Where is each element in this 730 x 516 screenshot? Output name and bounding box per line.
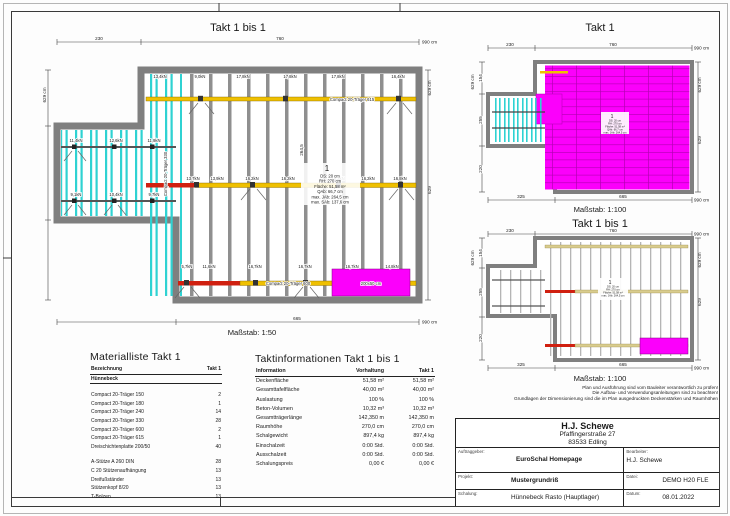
- annotation-block-small: 1 DS: 20 cm RH: 270 cm Fläche: 51,58 m² …: [598, 278, 628, 300]
- svg-text:13,7kN: 13,7kN: [186, 176, 199, 181]
- svg-text:17,8kN: 17,8kN: [331, 74, 344, 79]
- dim-label: 629 cm: [427, 80, 432, 95]
- plan-large-title: Takt 1 bis 1: [210, 22, 266, 34]
- drawing-sheet: { "plan_large": { "title": "Takt 1 bis 1…: [0, 0, 730, 516]
- field-client-value: EuroSchal Homepage: [516, 456, 582, 463]
- svg-text:9,1kN: 9,1kN: [71, 192, 82, 197]
- svg-text:9,0kN: 9,0kN: [195, 74, 206, 79]
- svg-text:629 cm: 629 cm: [470, 250, 475, 265]
- field-date: Datum: 08.01.2022: [624, 490, 719, 506]
- material-row: Stützenkopf 8/2013: [90, 484, 222, 493]
- takt-info-row: Beton-Volumen10,32 m³10,32 m³: [255, 405, 435, 414]
- plan-large-dim-top: [57, 39, 419, 45]
- svg-text:16,2kN: 16,2kN: [281, 176, 294, 181]
- annotation-block-small: 1 DS: 20 cm RH: 270 cm Fläche: 51,58 m² …: [601, 112, 629, 135]
- svg-text:990 cm: 990 cm: [694, 46, 709, 51]
- svg-text:9,7kN: 9,7kN: [149, 192, 160, 197]
- svg-text:230: 230: [506, 42, 514, 47]
- svg-text:760: 760: [609, 42, 617, 47]
- plan-large-dim-bottom: [57, 319, 419, 325]
- material-row: Dreifußständer13: [90, 476, 222, 485]
- takt-info-row: Ausschalzeit0:00 Std.0:00 Std.: [255, 451, 435, 460]
- field-formwork-value: Hünnebeck Rasto (Hauptlager): [511, 494, 599, 501]
- takt-info: Taktinformationen Takt 1 bis 1 Informati…: [255, 353, 435, 469]
- svg-text:17,8kN: 17,8kN: [283, 74, 296, 79]
- beam-label-wing: Compact 20-Träger 330: [163, 151, 168, 196]
- field-editor-label: Bearbeiter:: [626, 449, 717, 454]
- material-list: Materialliste Takt 1 Bezeichnung Takt 1 …: [90, 351, 222, 501]
- svg-text:16,4kN: 16,4kN: [391, 74, 404, 79]
- takt-info-table: Information Vorhaltung Takt 1 Deckenfläc…: [255, 367, 435, 469]
- takt-info-row: Auslastung100 %100 %: [255, 396, 435, 405]
- field-project-value: Mustergrundriß: [511, 477, 558, 484]
- svg-text:12,6kN: 12,6kN: [109, 138, 122, 143]
- company-address-street: Pfaffingerstraße 27: [456, 431, 719, 439]
- svg-text:10,4kN: 10,4kN: [109, 192, 122, 197]
- plan-top-right-title: Takt 1: [585, 22, 614, 34]
- svg-text:5,7kN: 5,7kN: [182, 264, 193, 269]
- svg-text:14,8kN: 14,8kN: [385, 264, 398, 269]
- svg-text:11,4kN: 11,4kN: [70, 138, 83, 143]
- svg-text:629: 629: [697, 298, 702, 306]
- deck-panel-label: 200x50 cm: [361, 281, 382, 286]
- dim-label: 990 cm: [422, 40, 437, 45]
- svg-text:max. SAb: 137,6 cm: max. SAb: 137,6 cm: [311, 200, 349, 205]
- svg-text:154: 154: [478, 74, 483, 82]
- dim-label: 264,5: [299, 144, 304, 156]
- company-address-city: 83533 Edling: [456, 439, 719, 447]
- svg-text:154: 154: [478, 249, 483, 257]
- title-block-company: H.J. Schewe Pfaffingerstraße 27 83533 Ed…: [456, 419, 719, 448]
- beam: [575, 290, 688, 293]
- material-list-table: Bezeichnung Takt 1 Hünnebeck Compact 20-…: [90, 365, 222, 501]
- takt-info-row: Schalgewicht897,4 kg897,4 kg: [255, 432, 435, 441]
- beam-label-top: Compact 20-Träger 615: [330, 97, 375, 102]
- svg-text:13,4kN: 13,4kN: [153, 74, 166, 79]
- beam-red: [545, 290, 575, 293]
- plan-large-dim-right: [425, 70, 431, 300]
- svg-text:255: 255: [478, 116, 483, 124]
- svg-text:665: 665: [619, 362, 627, 367]
- svg-text:990 cm: 990 cm: [694, 232, 709, 237]
- beam: [540, 71, 568, 74]
- dim-label: 230: [95, 36, 103, 41]
- disclaimer-line: Grundlagen der Dimensionierung sind die …: [430, 396, 718, 401]
- company-name: H.J. Schewe: [456, 421, 719, 431]
- field-client-label: Auftraggeber:: [458, 449, 621, 454]
- beam-label-bottom: Compact 20-Träger 600: [266, 281, 311, 286]
- field-date-value: 08.01.2022: [662, 494, 694, 501]
- material-row: Compact 20-Träger 6151: [90, 434, 222, 443]
- field-client: Auftraggeber: EuroSchal Homepage: [456, 448, 624, 472]
- disclaimer: Plan und Ausführung sind vom Bauleiter v…: [430, 385, 718, 401]
- takt-number: 1: [325, 164, 330, 173]
- plan-large-scale: Maßstab: 1:50: [228, 328, 277, 337]
- takt-info-row: Einschalzeit0:00 Std.0:00 Std.: [255, 442, 435, 451]
- takt-info-header: Information Vorhaltung Takt 1: [255, 367, 435, 377]
- title-block: H.J. Schewe Pfaffingerstraße 27 83533 Ed…: [455, 418, 719, 506]
- plan-mid-right-scale: Maßstab: 1:100: [574, 374, 627, 383]
- material-list-title: Materialliste Takt 1: [90, 351, 222, 363]
- field-editor-value: H.J. Schewe: [626, 457, 717, 464]
- material-row: Compact 20-Träger 24014: [90, 408, 222, 417]
- plan-large: Takt 1 bis 1 230 760 990 cm 665 990 cm 6…: [42, 22, 437, 337]
- material-row: Compact 20-Träger 6002: [90, 426, 222, 435]
- material-row: Compact 20-Träger 33028: [90, 417, 222, 426]
- material-row: A-Stütze A 260 DIN28: [90, 458, 222, 467]
- field-project: Projekt: Mustergrundriß: [456, 473, 624, 489]
- material-list-header: Bezeichnung Takt 1: [90, 365, 222, 374]
- svg-text:629: 629: [697, 136, 702, 144]
- beam: [545, 245, 688, 248]
- plan-large-dim-left: [45, 70, 51, 300]
- wing-cyan-joists: [492, 98, 542, 142]
- plan-top-right-scale: Maßstab: 1:100: [574, 205, 627, 214]
- svg-text:max. JAb: 264,5 cm: max. JAb: 264,5 cm: [602, 294, 625, 298]
- annotation-block: 1 DS: 20 cm RH: 270 cm Fläche: 51,58 m² …: [301, 163, 360, 205]
- takt-info-row: Gesamtträgerlänge142,350 m142,350 m: [255, 414, 435, 423]
- svg-text:629 cm: 629 cm: [470, 74, 475, 89]
- svg-text:16,8kN: 16,8kN: [393, 176, 406, 181]
- dim-label: 629: [427, 186, 432, 194]
- svg-text:255: 255: [478, 288, 483, 296]
- svg-text:16,2kN: 16,2kN: [361, 176, 374, 181]
- field-formwork: Schalung: Hünnebeck Rasto (Hauptlager): [456, 490, 624, 506]
- field-file-value: DEMO H20 FLE: [662, 477, 708, 484]
- plan-mid-right-title: Takt 1 bis 1: [572, 218, 628, 230]
- material-row: T-Bolzen13: [90, 493, 222, 502]
- material-row: Compact 20-Träger 1502: [90, 391, 222, 400]
- deck-panel: [640, 338, 688, 354]
- svg-text:230: 230: [506, 228, 514, 233]
- material-group: Hünnebeck: [90, 374, 222, 384]
- svg-text:760: 760: [609, 228, 617, 233]
- svg-text:990 cm: 990 cm: [694, 366, 709, 371]
- svg-text:16,2kN: 16,2kN: [245, 176, 258, 181]
- beam-red: [545, 344, 575, 347]
- dim-label: 665: [293, 316, 301, 321]
- svg-text:16,7kN: 16,7kN: [248, 264, 261, 269]
- plan-mid-right: Takt 1 bis 1 230 760 990 cm 325 665 990 …: [470, 218, 709, 383]
- takt-info-row: Raumhöhe270,0 cm270,0 cm: [255, 423, 435, 432]
- field-file: Datei: DEMO H20 FLE: [624, 473, 719, 489]
- svg-text:220: 220: [478, 334, 483, 342]
- takt-info-row: Gesamttafelfläche40,00 m²40,00 m²: [255, 386, 435, 395]
- dim-label: 629 cm: [42, 87, 47, 102]
- svg-text:220: 220: [478, 165, 483, 173]
- material-row: Dreischichtenplatte 200/5040: [90, 443, 222, 452]
- dim-label: 990 cm: [422, 320, 437, 325]
- takt-info-row: Deckenfläche51,58 m²51,58 m²: [255, 377, 435, 387]
- svg-text:665: 665: [619, 194, 627, 199]
- takt-info-title: Taktinformationen Takt 1 bis 1: [255, 353, 435, 365]
- takt-info-row: Schalungspreis0,00 €0,00 €: [255, 460, 435, 469]
- svg-text:17,8kN: 17,8kN: [236, 74, 249, 79]
- material-row: C 20 Stützenaufhängung13: [90, 467, 222, 476]
- svg-text:629 cm: 629 cm: [697, 252, 702, 267]
- plan-top-right: Takt 1 230 760 990 cm 325 665 990 cm 629…: [470, 22, 709, 214]
- material-row: Compact 20-Träger 1801: [90, 400, 222, 409]
- svg-text:max. JAb: 264,5 cm: max. JAb: 264,5 cm: [604, 131, 627, 135]
- svg-text:16,7kN: 16,7kN: [298, 264, 311, 269]
- dim-label: 760: [276, 36, 284, 41]
- svg-text:325: 325: [517, 194, 525, 199]
- svg-text:325: 325: [517, 362, 525, 367]
- svg-text:11,9kN: 11,9kN: [148, 138, 161, 143]
- field-editor: Bearbeiter: H.J. Schewe: [624, 448, 719, 472]
- svg-text:13,9kN: 13,9kN: [210, 176, 223, 181]
- svg-text:11,6kN: 11,6kN: [203, 264, 216, 269]
- svg-text:990 cm: 990 cm: [694, 198, 709, 203]
- svg-text:16,7kN: 16,7kN: [345, 264, 358, 269]
- svg-text:629 cm: 629 cm: [697, 77, 702, 92]
